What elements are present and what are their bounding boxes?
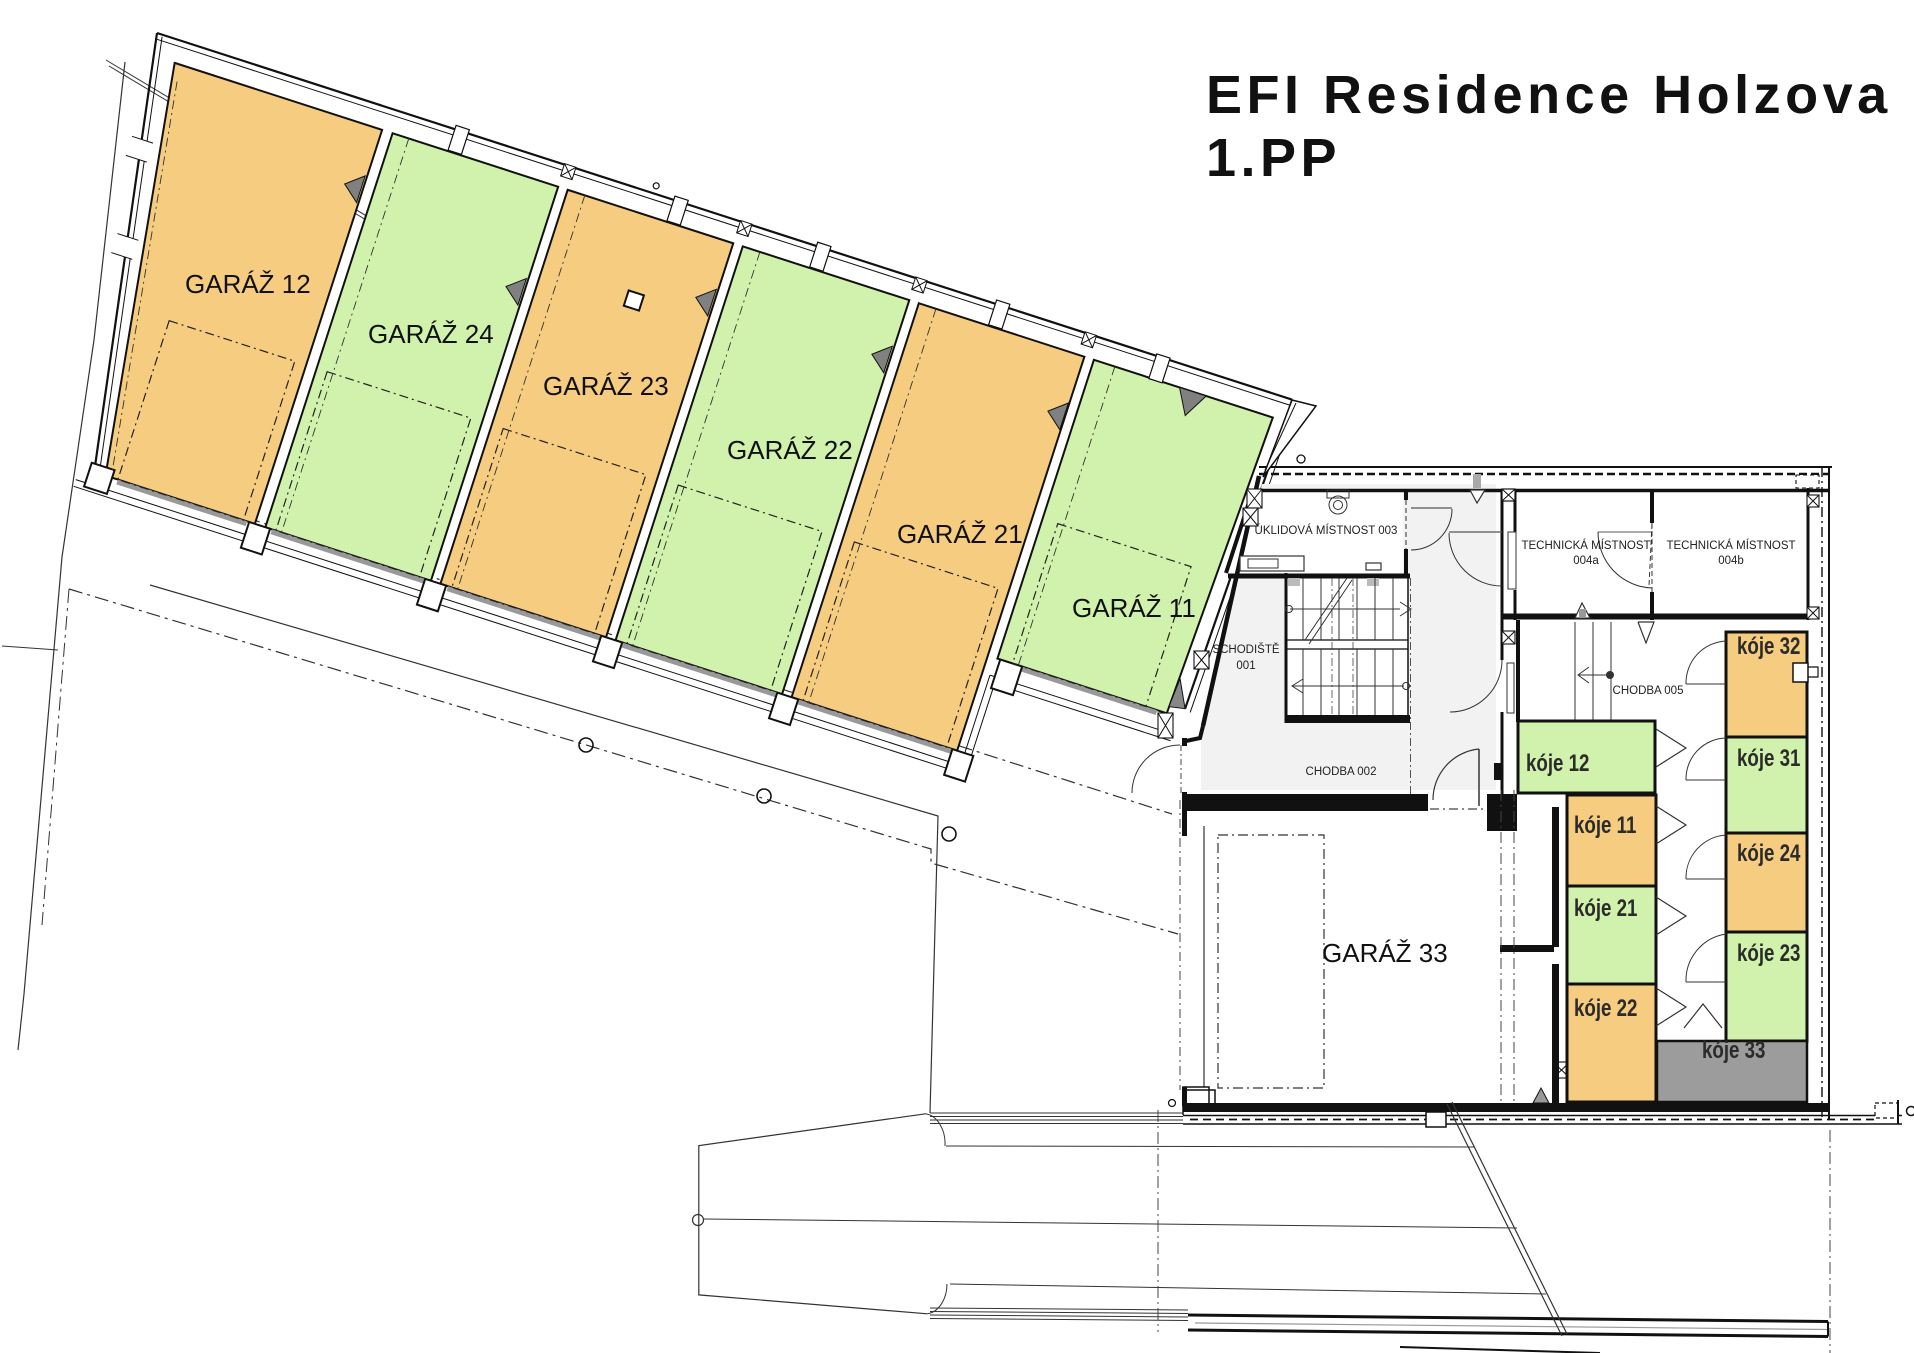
svg-text:GARÁŽ 12: GARÁŽ 12 (185, 269, 311, 299)
svg-text:GARÁŽ 21: GARÁŽ 21 (897, 519, 1023, 549)
svg-text:kóje 12: kóje 12 (1526, 750, 1589, 777)
svg-text:kóje 21: kóje 21 (1574, 895, 1637, 922)
svg-text:TECHNICKÁ MÍSTNOST: TECHNICKÁ MÍSTNOST (1521, 539, 1650, 552)
svg-text:GARÁŽ 33: GARÁŽ 33 (1322, 938, 1448, 968)
svg-text:kóje 32: kóje 32 (1737, 633, 1800, 660)
svg-text:ÚKLIDOVÁ MÍSTNOST 003: ÚKLIDOVÁ MÍSTNOST 003 (1255, 524, 1398, 537)
svg-text:CHODBA 002: CHODBA 002 (1306, 766, 1377, 778)
svg-text:kóje 31: kóje 31 (1737, 745, 1800, 772)
svg-text:kóje 24: kóje 24 (1737, 840, 1800, 867)
svg-text:GARÁŽ 11: GARÁŽ 11 (1072, 593, 1196, 623)
svg-text:001: 001 (1236, 660, 1255, 672)
svg-text:kóje 22: kóje 22 (1574, 995, 1637, 1022)
svg-text:kóje 33: kóje 33 (1702, 1037, 1765, 1064)
svg-text:TECHNICKÁ MÍSTNOST: TECHNICKÁ MÍSTNOST (1666, 539, 1795, 552)
svg-text:kóje 11: kóje 11 (1574, 812, 1636, 839)
svg-text:004b: 004b (1718, 555, 1744, 567)
svg-text:CHODBA 005: CHODBA 005 (1613, 685, 1684, 697)
svg-text:1.PP: 1.PP (1206, 128, 1341, 188)
svg-text:GARÁŽ 23: GARÁŽ 23 (543, 371, 669, 401)
svg-text:kóje 23: kóje 23 (1737, 940, 1800, 967)
svg-text:GARÁŽ 24: GARÁŽ 24 (368, 319, 494, 349)
svg-text:EFI Residence Holzova: EFI Residence Holzova (1206, 65, 1892, 125)
svg-text:SCHODIŠTĚ: SCHODIŠTĚ (1212, 643, 1279, 656)
svg-text:004a: 004a (1573, 555, 1599, 567)
svg-text:GARÁŽ 22: GARÁŽ 22 (727, 435, 853, 465)
